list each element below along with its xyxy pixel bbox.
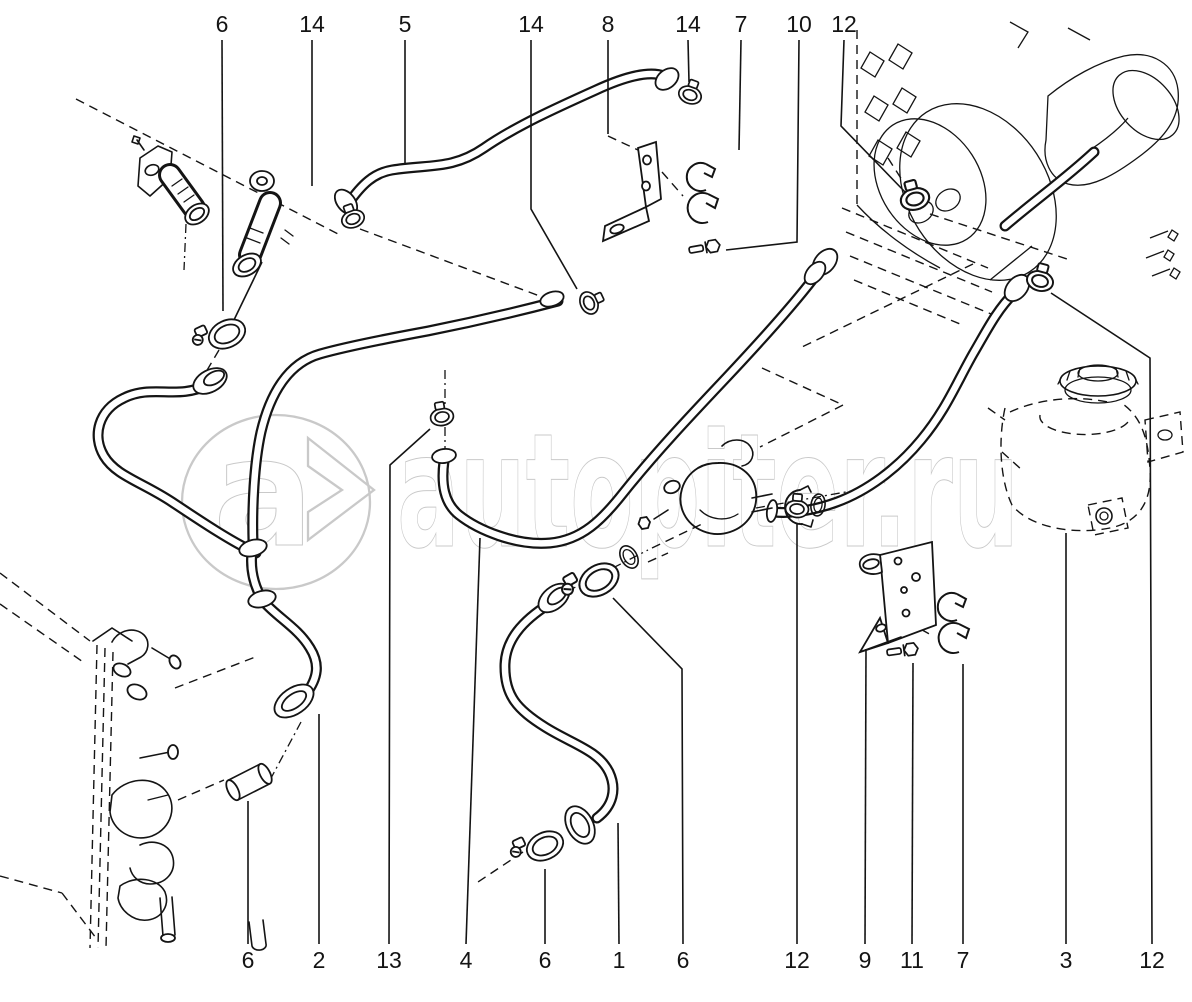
parts-diagram-page: a autopiter.ru	[0, 0, 1192, 1002]
callout-bottom-6c[interactable]: 6	[677, 947, 690, 973]
callout-top-14b[interactable]: 14	[518, 11, 544, 37]
callout-bottom-7[interactable]: 7	[957, 947, 970, 973]
callout-bottom-2[interactable]: 2	[313, 947, 326, 973]
callout-top-14a[interactable]: 14	[299, 11, 325, 37]
callout-bottom-6a[interactable]: 6	[242, 947, 255, 973]
callout-bottom-12a[interactable]: 12	[784, 947, 810, 973]
callout-bottom-13[interactable]: 13	[376, 947, 402, 973]
callout-bottom-1[interactable]: 1	[613, 947, 626, 973]
callout-bottom-6b[interactable]: 6	[539, 947, 552, 973]
callout-top-7[interactable]: 7	[735, 11, 748, 37]
callout-top-6[interactable]: 6	[216, 11, 229, 37]
callout-bottom-12b[interactable]: 12	[1139, 947, 1165, 973]
callout-top-8[interactable]: 8	[602, 11, 615, 37]
callout-top-10[interactable]: 10	[786, 11, 812, 37]
callout-bottom-11[interactable]: 11	[900, 947, 924, 973]
callout-top-14c[interactable]: 14	[675, 11, 701, 37]
callout-top-5[interactable]: 5	[399, 11, 412, 37]
cooling-hoses-diagram: a autopiter.ru	[0, 0, 1192, 1002]
callout-bottom-3[interactable]: 3	[1060, 947, 1073, 973]
callout-bottom-4[interactable]: 4	[460, 947, 473, 973]
callout-top-12[interactable]: 12	[831, 11, 857, 37]
callout-bottom-9[interactable]: 9	[859, 947, 872, 973]
